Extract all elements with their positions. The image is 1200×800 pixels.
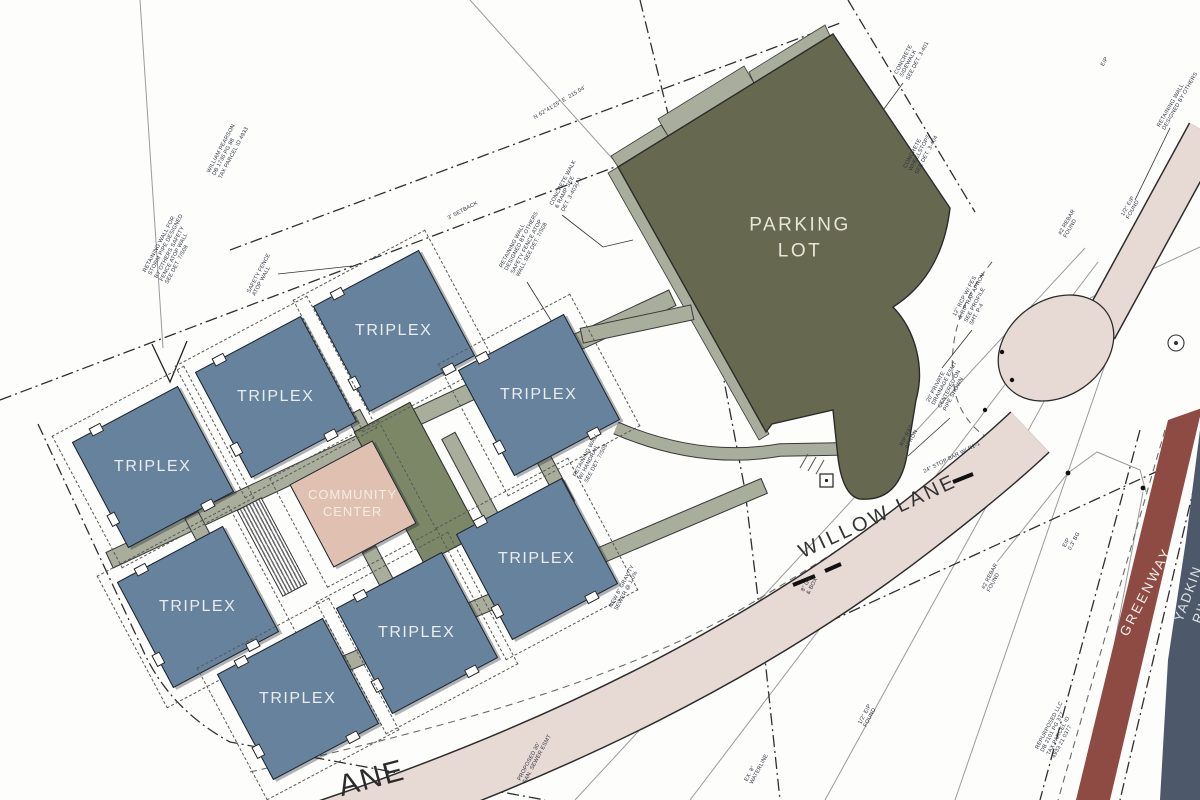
survey-point (1066, 471, 1071, 476)
survey-point (983, 408, 987, 412)
stoop-marker (106, 511, 120, 527)
building-community-center: COMMUNITY CENTER (289, 440, 416, 567)
catch-basin-symbol (825, 479, 828, 482)
parking-lot-label: PARKING LOT (749, 212, 851, 263)
building-label: TRIPLEX (355, 322, 432, 340)
stoop-marker (234, 655, 250, 669)
stoop-marker (464, 664, 480, 678)
road-greenway-spur (1098, 132, 1200, 330)
stoop-marker (475, 351, 491, 365)
survey-point (1000, 350, 1004, 354)
survey-line (470, 0, 618, 165)
building-label: TRIPLEX (498, 550, 575, 568)
stoop-marker (473, 515, 489, 529)
stoop-marker (251, 743, 265, 759)
stoop-marker (200, 498, 216, 512)
building-label: TRIPLEX (378, 624, 455, 642)
survey-point (1010, 378, 1014, 382)
stoop-marker (212, 353, 228, 367)
building-label: TRIPLEX (500, 386, 577, 404)
stoop-marker (353, 589, 369, 603)
stoop-marker (492, 439, 506, 455)
survey-line (140, 0, 163, 348)
building-label: TRIPLEX (159, 598, 236, 616)
building-label: TRIPLEX (114, 458, 191, 476)
stoop-marker (584, 590, 600, 604)
stoop-marker (330, 287, 346, 301)
manhole-symbol (1174, 341, 1178, 345)
stoop-marker (323, 428, 339, 442)
building-label: TRIPLEX (259, 690, 336, 708)
site-plan-canvas: TRIPLEX TRIPLEX TRIPLEX TRIPLEX TRIPLEX … (0, 0, 1200, 800)
survey-point (1141, 486, 1146, 491)
stoop-marker (134, 563, 150, 577)
ramp-hatch (800, 454, 824, 474)
walkway-to-stem (616, 428, 838, 454)
stoop-marker (151, 651, 165, 667)
building-label: COMMUNITY CENTER (308, 487, 397, 521)
stoop-marker (89, 423, 105, 437)
leader-line (562, 215, 633, 247)
stoop-marker (345, 730, 361, 744)
building-label: TRIPLEX (237, 388, 314, 406)
